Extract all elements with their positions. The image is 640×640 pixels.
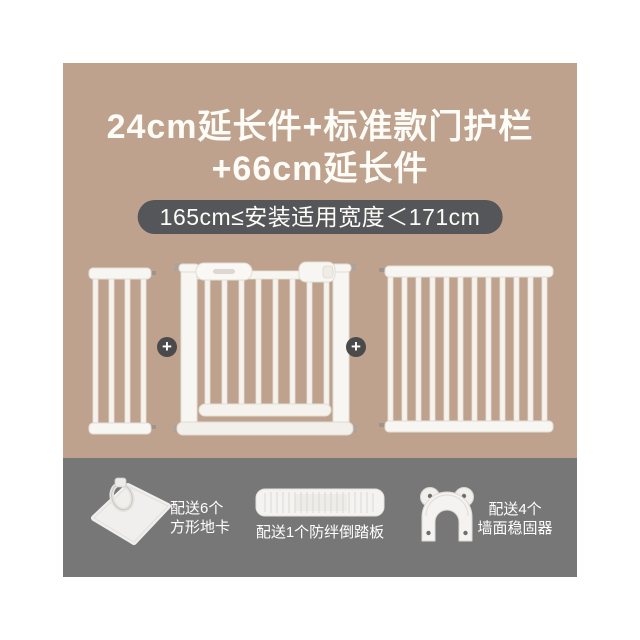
hero-section: 24cm延长件+标准款门护栏 +66cm延长件 165cm≤安装适用宽度＜171… bbox=[63, 63, 577, 458]
accessory-name: 方形地卡 bbox=[170, 518, 230, 537]
gate-handle-icon bbox=[196, 263, 252, 280]
accessory-qty: 配送4个 bbox=[471, 500, 559, 519]
extension-panel-24cm-icon bbox=[87, 263, 157, 441]
floor-card-icon bbox=[88, 476, 172, 548]
width-range-badge: 165cm≤安装适用宽度＜171cm bbox=[138, 200, 503, 234]
accessory-stabilizer-label: 配送4个 墙面稳固器 bbox=[471, 500, 559, 538]
wall-stabilizer-icon bbox=[415, 483, 479, 545]
product-title-line1: 24cm延长件+标准款门护栏 bbox=[63, 107, 577, 147]
gate-latch-icon bbox=[299, 262, 335, 282]
standard-door-gate-icon bbox=[171, 257, 359, 445]
extension-panel-66cm-icon bbox=[378, 263, 556, 435]
plus-icon: + bbox=[346, 337, 366, 357]
accessory-qty: 配送6个 bbox=[170, 499, 230, 518]
accessory-floor-card-label: 配送6个 方形地卡 bbox=[170, 499, 230, 537]
accessory-pedal-label: 配送1个防绊倒踏板 bbox=[253, 523, 387, 542]
accessories-section: 配送6个 方形地卡 配送1个防绊倒踏板 bbox=[63, 458, 577, 577]
accessory-name: 墙面稳固器 bbox=[471, 519, 559, 538]
pedal-icon bbox=[255, 488, 385, 518]
product-title-line2: +66cm延长件 bbox=[63, 149, 577, 189]
product-card: 24cm延长件+标准款门护栏 +66cm延长件 165cm≤安装适用宽度＜171… bbox=[63, 63, 577, 577]
